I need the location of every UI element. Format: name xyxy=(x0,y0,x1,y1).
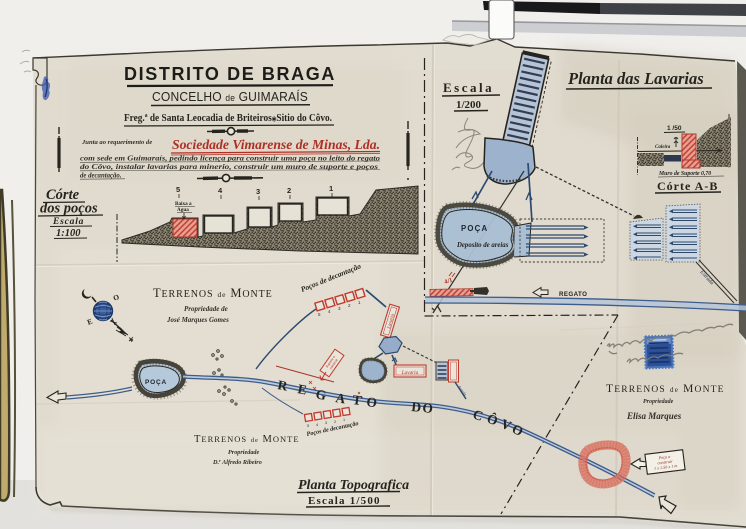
svg-text:Planta das Lavarias: Planta das Lavarias xyxy=(567,69,704,88)
svg-text:Freg.ª de Santa Leocadia de Br: Freg.ª de Santa Leocadia de Briteiros⁎Si… xyxy=(124,112,332,124)
svg-text:DISTRITO DE BRAGA: DISTRITO DE BRAGA xyxy=(124,64,336,84)
svg-text:Propriedade: Propriedade xyxy=(643,399,674,405)
svg-text:Lavaria: Lavaria xyxy=(401,370,419,376)
svg-text:O: O xyxy=(422,400,434,416)
svg-text:Propriedade: Propriedade xyxy=(228,449,260,456)
svg-text:1:100: 1:100 xyxy=(56,228,81,239)
svg-text:O: O xyxy=(366,394,378,410)
svg-text:Junta ao requerimento de: Junta ao requerimento de xyxy=(81,139,152,146)
svg-text:Deposito de areias: Deposito de areias xyxy=(456,242,509,249)
svg-text:2: 2 xyxy=(334,420,336,424)
svg-text:1/200: 1/200 xyxy=(456,99,482,111)
svg-text:1: 1 xyxy=(343,418,345,422)
svg-text:Caleira: Caleira xyxy=(655,145,671,150)
svg-text:TERRENOS de MONTE: TERRENOS de MONTE xyxy=(194,434,300,445)
svg-text:Planta Topografica: Planta Topografica xyxy=(298,478,409,493)
svg-text:3: 3 xyxy=(256,187,260,196)
svg-text:POÇA: POÇA xyxy=(461,224,488,233)
svg-text:REGATO: REGATO xyxy=(559,291,587,298)
svg-text:Escala 1/500: Escala 1/500 xyxy=(308,495,381,507)
svg-text:Escala: Escala xyxy=(52,217,84,227)
svg-text:José Marques Gomes: José Marques Gomes xyxy=(166,316,229,324)
svg-text:1: 1 xyxy=(329,184,333,193)
svg-text:Propriedade de: Propriedade de xyxy=(184,305,228,313)
svg-text:TERRENOS de MONTE: TERRENOS de MONTE xyxy=(153,286,273,300)
svg-text:2: 2 xyxy=(287,186,291,195)
svg-text:5: 5 xyxy=(307,424,309,428)
svg-text:Escala: Escala xyxy=(443,80,494,95)
svg-text:Elisa Marques: Elisa Marques xyxy=(626,411,682,421)
svg-text:de decantação.: de decantação. xyxy=(80,173,122,180)
svg-text:3: 3 xyxy=(325,421,327,425)
svg-text:T: T xyxy=(352,392,363,408)
svg-text:Córte A-B: Córte A-B xyxy=(657,179,718,193)
svg-text:D: D xyxy=(411,399,423,415)
svg-text:1 /50: 1 /50 xyxy=(667,125,682,132)
svg-text:4: 4 xyxy=(316,423,318,427)
svg-text:Sociedade Vimarense de Minas,: Sociedade Vimarense de Minas, Lda. xyxy=(172,138,380,153)
svg-text:5: 5 xyxy=(176,185,180,194)
svg-text:Agua: Agua xyxy=(177,207,189,213)
svg-text:TERRENOS de MONTE: TERRENOS de MONTE xyxy=(606,383,725,395)
svg-text:POÇA: POÇA xyxy=(145,379,167,386)
